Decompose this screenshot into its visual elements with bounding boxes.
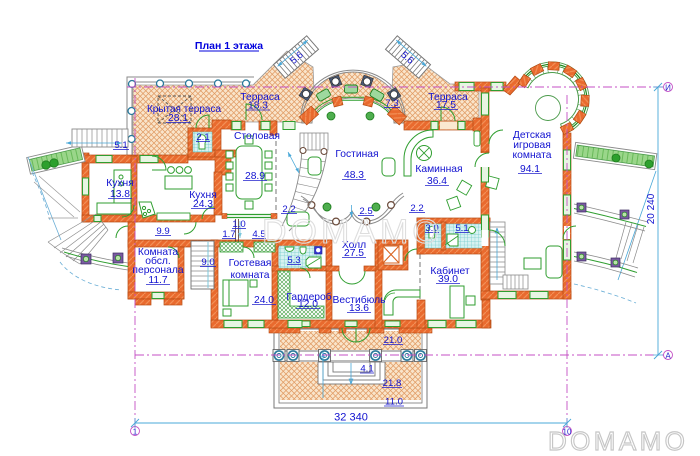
svg-text:DOMAMO: DOMAMO bbox=[262, 213, 443, 251]
svg-text:Каминная: Каминная bbox=[415, 164, 462, 175]
svg-text:План 1 этажа: План 1 этажа bbox=[195, 40, 263, 52]
svg-text:Кухня: Кухня bbox=[106, 178, 134, 189]
svg-text:комната: комната bbox=[231, 270, 270, 281]
svg-text:Гостиная: Гостиная bbox=[335, 149, 378, 160]
svg-text:1: 1 bbox=[133, 428, 138, 437]
svg-text:А: А bbox=[665, 352, 671, 361]
svg-text:20 240: 20 240 bbox=[646, 193, 657, 224]
svg-text:комната: комната bbox=[513, 150, 552, 161]
svg-text:Столовая: Столовая bbox=[234, 131, 280, 142]
svg-text:Гостевая: Гостевая bbox=[229, 258, 272, 269]
svg-text:И: И bbox=[665, 84, 671, 93]
svg-text:32 340: 32 340 bbox=[334, 412, 368, 424]
svg-text:DOMAMO: DOMAMO bbox=[548, 426, 688, 456]
